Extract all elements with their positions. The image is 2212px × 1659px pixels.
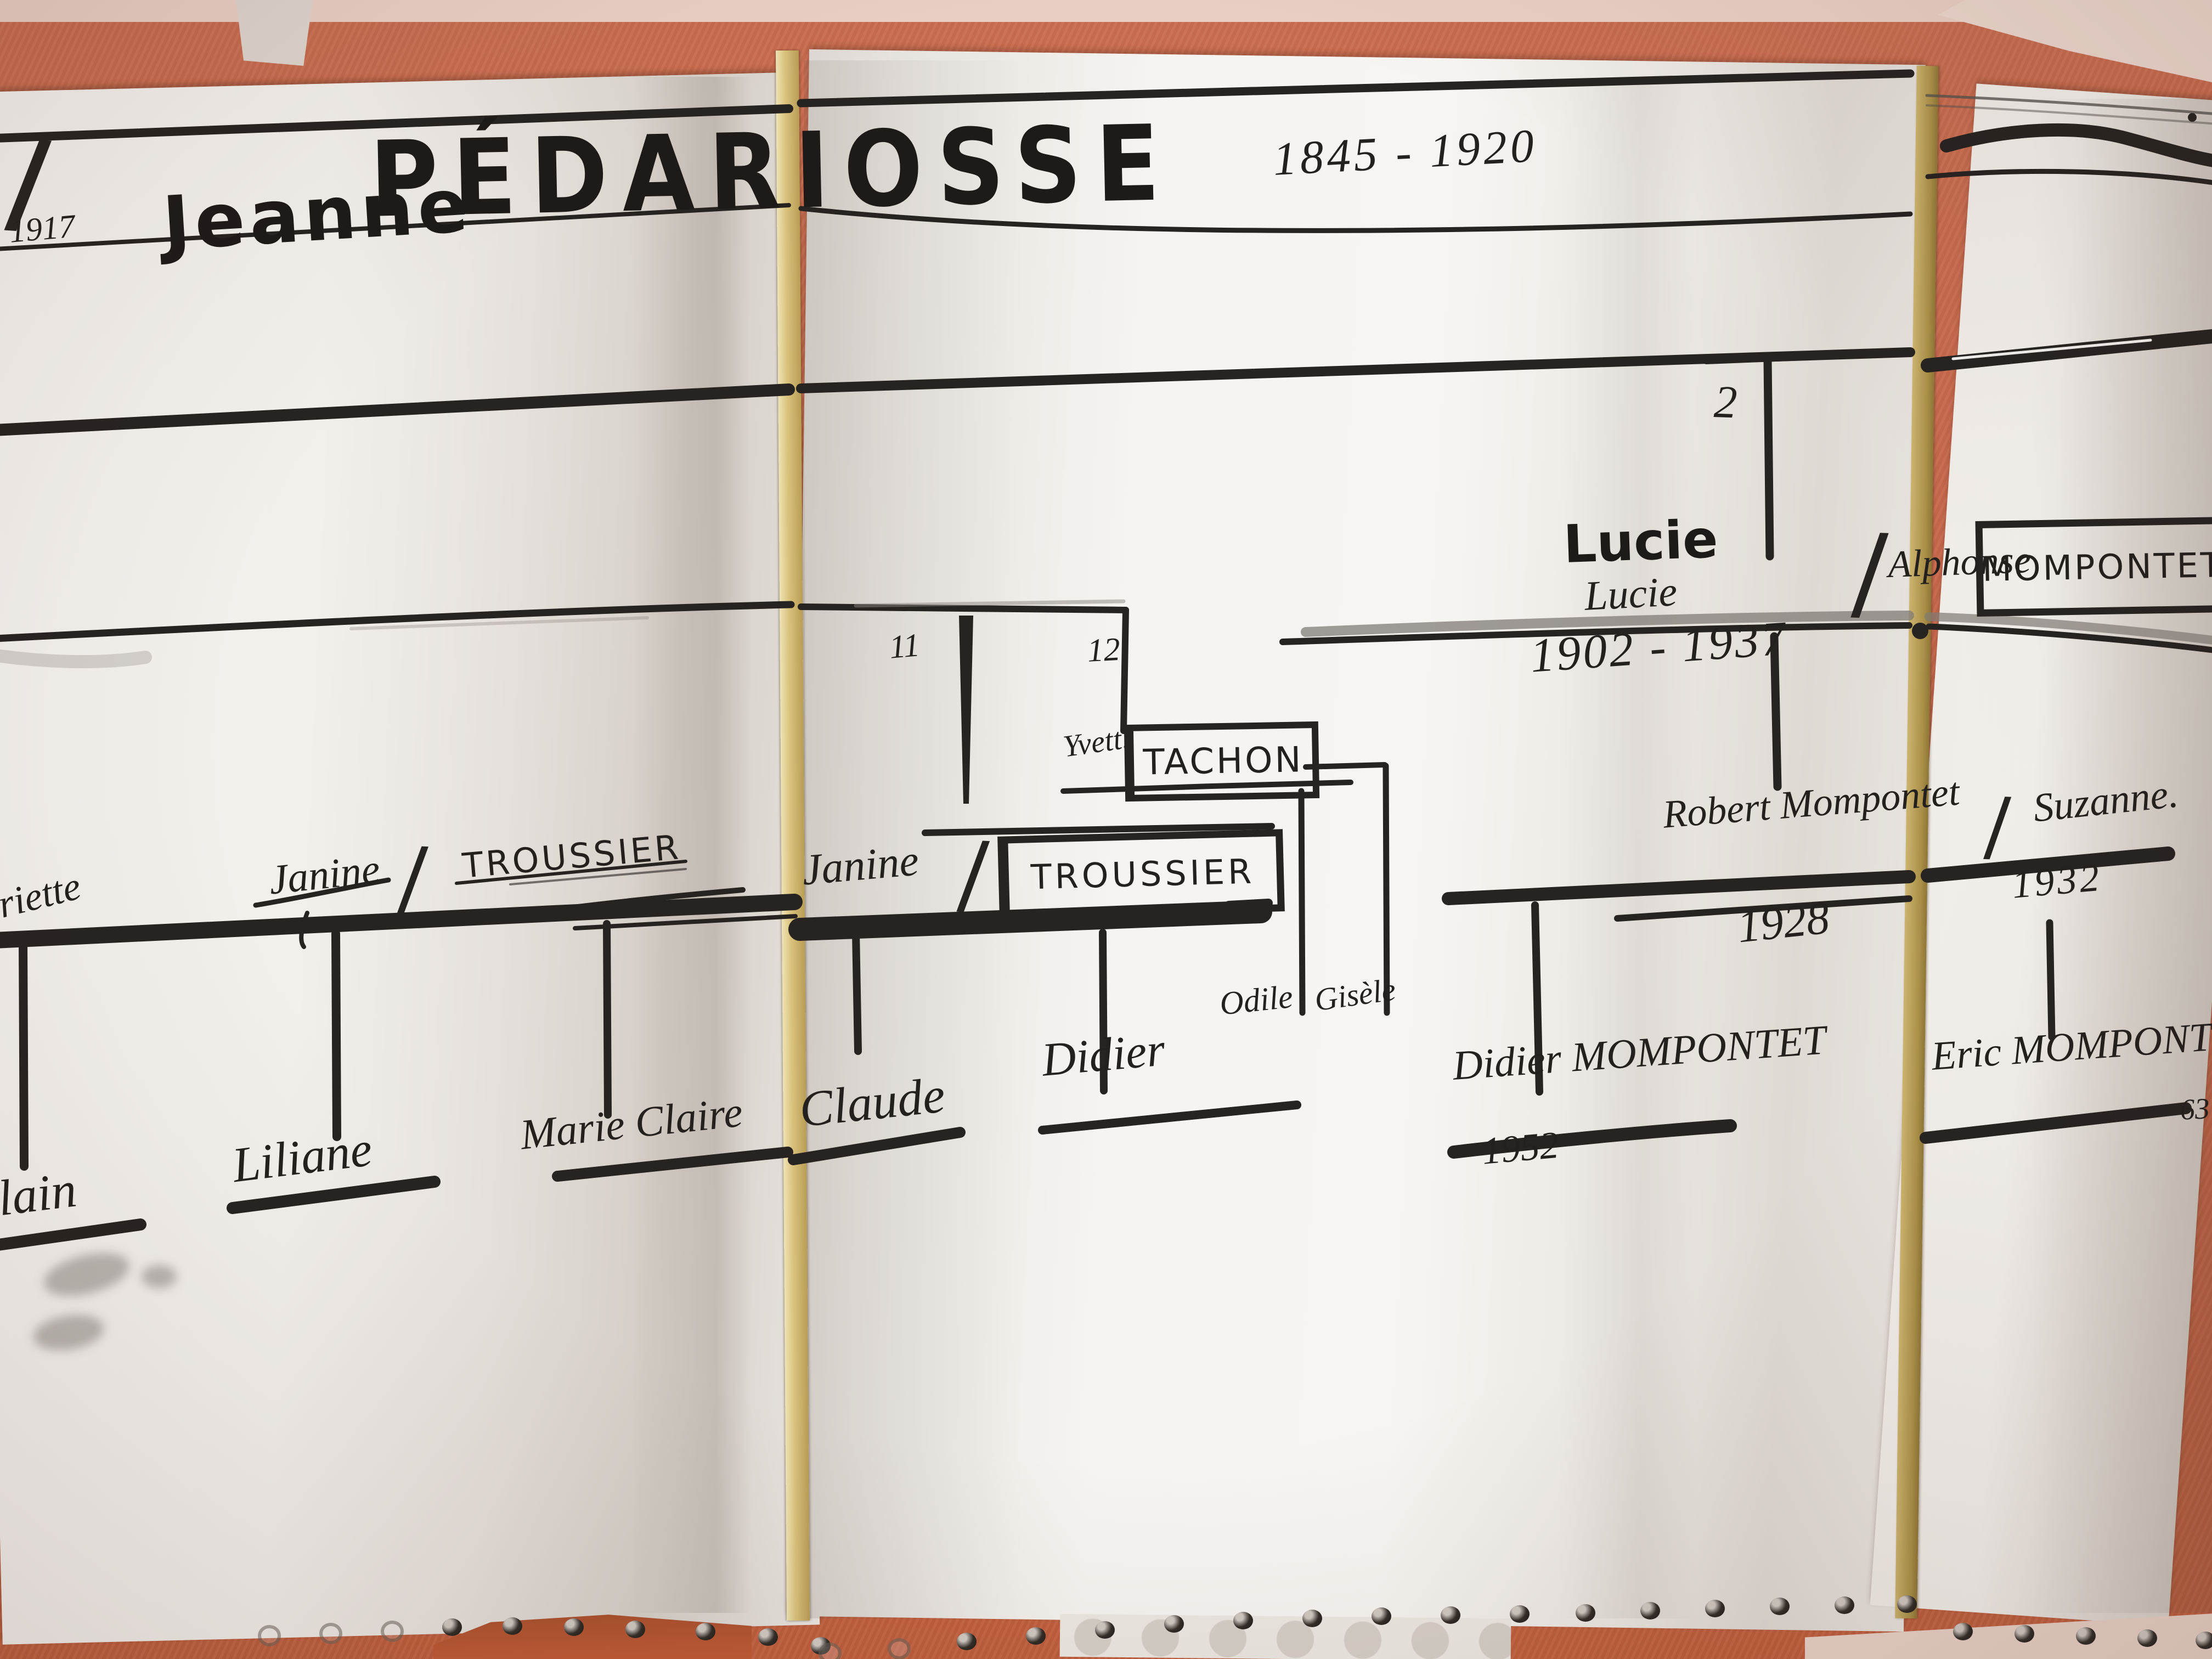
odile-name: Odile xyxy=(1218,978,1295,1023)
perforation-hole xyxy=(625,1621,645,1638)
perforation-hole xyxy=(758,1628,778,1646)
perforation-hole xyxy=(503,1617,522,1635)
perforation-hole xyxy=(1372,1607,1391,1625)
perforation-hole xyxy=(819,1643,842,1659)
perforation-hole xyxy=(1576,1604,1595,1622)
lucie-name-pen: Lucie xyxy=(1583,568,1678,620)
perforation-hole xyxy=(1026,1627,1046,1645)
perforation-hole xyxy=(1705,1600,1725,1617)
perforation-hole xyxy=(2015,1625,2034,1643)
perforation-hole xyxy=(381,1621,404,1642)
branch-number-11: 11 xyxy=(888,626,921,667)
perforation-hole xyxy=(442,1618,462,1636)
pencil-smudge-2 xyxy=(142,1265,177,1288)
troussier-middle-box: TROUSSIER xyxy=(997,829,1285,919)
perforation-hole xyxy=(957,1633,977,1650)
troussier-box-label: TROUSSIER xyxy=(1030,851,1255,897)
perforation-hole xyxy=(564,1618,584,1636)
robert-year: 1928 xyxy=(1735,891,1832,953)
paper-sheet-middle xyxy=(787,49,1926,1632)
tachon-box-label: TACHON xyxy=(1143,740,1304,783)
slash-janine-left-couple: / xyxy=(397,830,430,926)
perforation-hole xyxy=(1164,1615,1184,1633)
perforation-hole xyxy=(2196,1632,2212,1649)
janine-middle-name: Janine xyxy=(800,836,921,895)
lucie-name-marker: Lucie xyxy=(1562,509,1719,575)
perforation-hole xyxy=(2137,1629,2157,1647)
branch-number-2: 2 xyxy=(1713,375,1738,429)
branch-number-12: 12 xyxy=(1086,630,1121,670)
perforation-hole xyxy=(1770,1598,1790,1615)
eric-note: 63 xyxy=(2179,1091,2210,1127)
perforation-hole xyxy=(319,1623,342,1644)
perforation-hole xyxy=(1441,1606,1460,1624)
perforation-hole xyxy=(1233,1612,1253,1629)
didier-mompontet-year: 1952 xyxy=(1480,1124,1560,1174)
alain-fragment: lain xyxy=(0,1160,80,1228)
perforation-hole xyxy=(1835,1596,1854,1614)
perforation-hole xyxy=(258,1625,281,1646)
perforation-hole xyxy=(1510,1605,1530,1623)
perforation-hole xyxy=(888,1638,911,1659)
slash-janine-couple: / xyxy=(956,822,991,926)
perforation-hole xyxy=(1953,1623,1973,1640)
slash-robert-couple: / xyxy=(1983,781,2012,872)
photograph-of-family-tree: / 1917 Jeanne PÉDARIOSSE 1845 - 1920 2 L… xyxy=(0,0,2212,1659)
pale-backing-top-center xyxy=(236,0,313,66)
perforation-hole xyxy=(1095,1621,1115,1639)
perforation-hole xyxy=(696,1623,715,1640)
slash-lucie-couple: / xyxy=(1850,511,1889,634)
pale-fabric-top-strip xyxy=(0,0,2212,22)
suzanne-year: 1932 xyxy=(2010,855,2104,908)
didier-middle-name: Didier xyxy=(1040,1022,1167,1087)
tachon-name-box: TACHON xyxy=(1124,721,1319,802)
perforation-hole xyxy=(2076,1627,2096,1645)
perforation-hole xyxy=(1897,1595,1917,1613)
perforation-hole xyxy=(1302,1610,1322,1627)
perforation-hole xyxy=(1640,1602,1660,1620)
pale-fabric-top-right xyxy=(1938,0,2212,82)
alphonse-first-name: Alphonse xyxy=(1887,538,2032,587)
root-surname: PÉDARIOSSE xyxy=(369,103,1175,241)
marriage-year-1917: 1917 xyxy=(8,207,77,251)
